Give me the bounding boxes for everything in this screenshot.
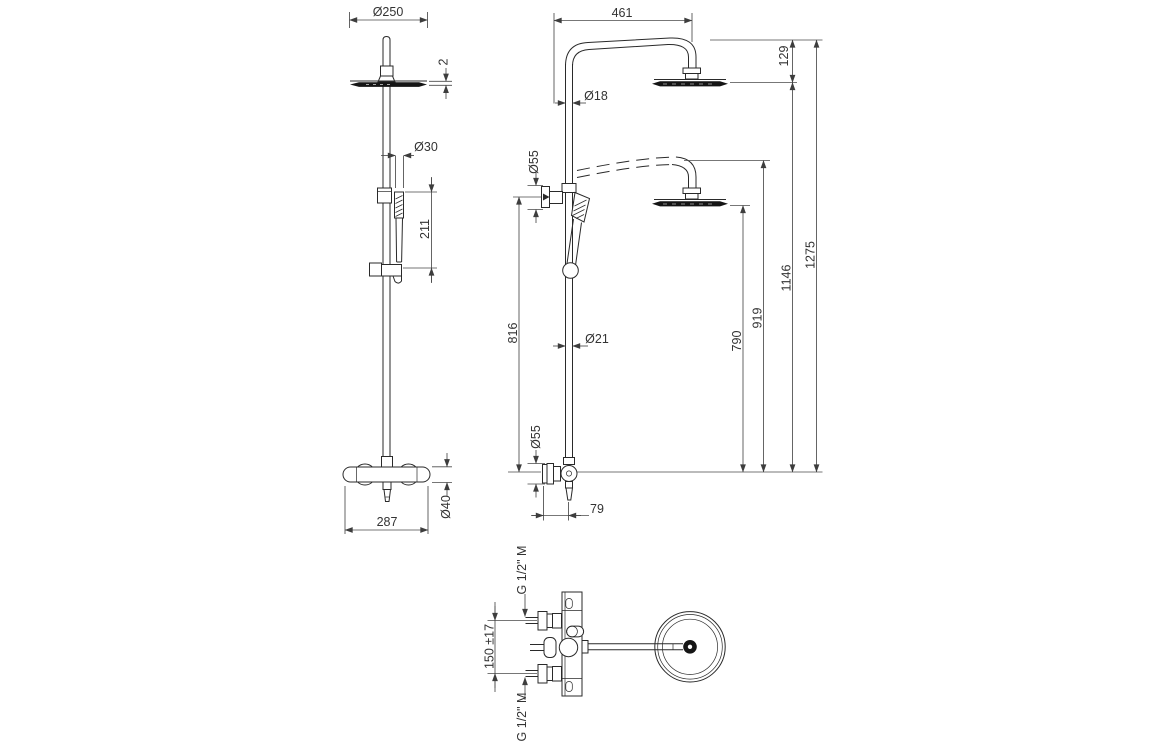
dim-head-height-raised-label: 1146 <box>780 265 794 292</box>
valve-trim-side <box>543 458 578 501</box>
dim-head-diameter-label: Ø250 <box>373 5 404 19</box>
dim-wall-offset-label: 79 <box>590 502 604 516</box>
slide-bracket-front <box>370 263 402 283</box>
front-elevation-view: Ø250 2 Ø30 211 287 Ø40 <box>343 5 453 534</box>
dim-arm-reach-label: 461 <box>612 6 633 20</box>
hand-shower-side <box>563 193 590 279</box>
dim-head-thickness-label: 2 <box>437 58 451 65</box>
dim-inlet-spacing-label: 150 ±17 <box>483 624 497 669</box>
dim-valve-trim-diameter-label: Ø55 <box>529 425 543 449</box>
shower-system-dimension-drawing: Ø250 2 Ø30 211 287 Ø40 <box>0 0 1156 742</box>
shower-arm-raised <box>566 38 701 79</box>
dim-handshower-diameter-label: Ø30 <box>414 140 438 154</box>
top-view-dimensions: 150 ±17 G 1/2" M G 1/2" M <box>483 546 538 742</box>
rain-head-raised-side <box>652 80 728 87</box>
dim-riser-diameter-label: Ø21 <box>585 332 609 346</box>
dim-overall-height-label: 1275 <box>804 241 818 269</box>
dim-handshower-length-label: 211 <box>418 219 432 239</box>
hand-shower-front <box>395 192 404 262</box>
dim-bracket-height-label: 816 <box>506 323 520 344</box>
dim-head-drop-label: 129 <box>777 46 791 67</box>
side-elevation-view: 461 Ø18 Ø55 816 Ø21 Ø55 <box>506 6 823 521</box>
inlet-thread-bottom-label: G 1/2" M <box>515 693 529 742</box>
rain-head-lowered-side <box>652 200 728 207</box>
dim-upper-pipe-diameter-label: Ø18 <box>584 89 608 103</box>
upper-arm-end-front <box>378 37 395 83</box>
top-view: 150 ±17 G 1/2" M G 1/2" M <box>483 546 726 742</box>
slider-collar-front <box>378 188 392 203</box>
thermostatic-valve-front <box>343 464 430 502</box>
dim-arm-height-lowered-label: 919 <box>751 308 765 329</box>
dim-valve-body-diameter-label: Ø40 <box>439 495 453 519</box>
shower-arm-lowered-dashed <box>577 157 701 199</box>
arm-top-view <box>588 640 697 654</box>
technical-drawing-sheet: Ø250 2 Ø30 211 287 Ø40 <box>0 0 1156 742</box>
riser-pipe-side <box>566 64 573 457</box>
dim-valve-width-label: 287 <box>377 515 398 529</box>
wall-bracket-side <box>542 184 577 208</box>
dim-head-height-lowered-label: 790 <box>730 331 744 352</box>
dim-bracket-diameter-label: Ø55 <box>527 150 541 174</box>
inlet-thread-top-label: G 1/2" M <box>515 546 529 595</box>
